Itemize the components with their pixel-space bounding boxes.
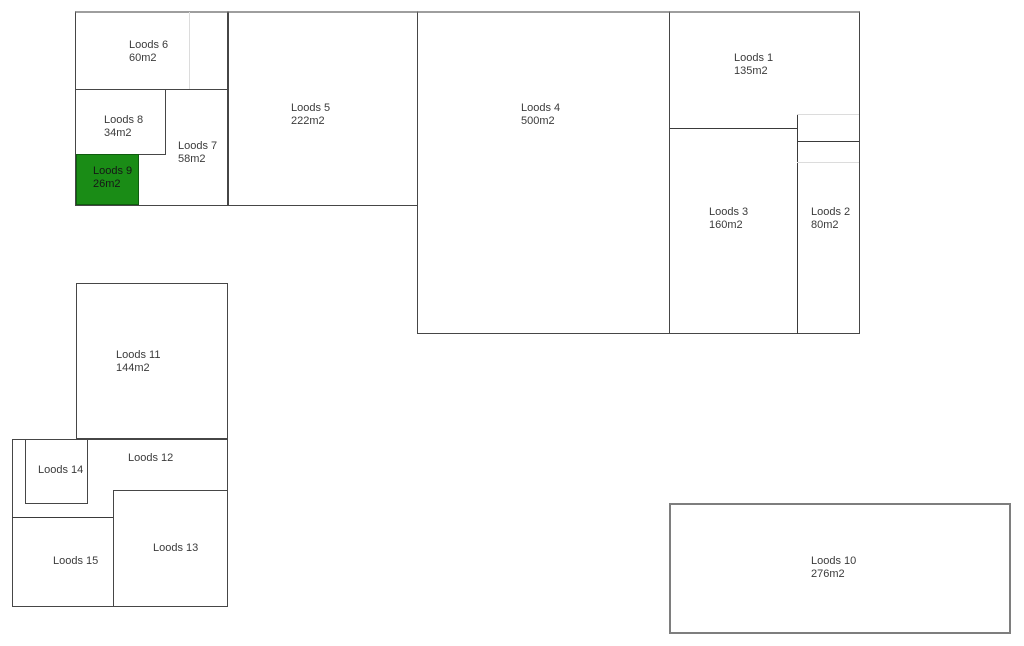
room-label-loods-15: Loods 15 [53, 555, 98, 568]
room-loods-3[interactable] [670, 129, 797, 334]
room-area: 80m2 [811, 219, 850, 232]
wall-line-light [189, 12, 190, 89]
room-loods-4[interactable] [417, 11, 670, 334]
room-name: Loods 6 [129, 39, 168, 52]
room-name: Loods 1 [734, 52, 773, 65]
room-name: Loods 15 [53, 555, 98, 568]
room-label-loods-13: Loods 13 [153, 542, 198, 555]
room-label-loods-4: Loods 4 500m2 [521, 102, 560, 127]
room-area: 135m2 [734, 65, 773, 78]
room-area: 58m2 [178, 153, 217, 166]
room-loods-2[interactable] [798, 142, 859, 334]
room-name: Loods 4 [521, 102, 560, 115]
room-name: Loods 12 [128, 452, 173, 465]
room-label-loods-10: Loods 10 276m2 [811, 555, 856, 580]
room-name: Loods 14 [38, 464, 83, 477]
room-label-loods-12: Loods 12 [128, 452, 173, 465]
room-loods-12[interactable] [89, 440, 228, 490]
room-area: 144m2 [116, 362, 160, 375]
room-area: 276m2 [811, 568, 856, 581]
room-label-loods-14: Loods 14 [38, 464, 83, 477]
room-label-loods-5: Loods 5 222m2 [291, 102, 330, 127]
room-label-loods-11: Loods 11 144m2 [116, 349, 160, 374]
room-label-loods-7: Loods 7 58m2 [178, 140, 217, 165]
room-area: 500m2 [521, 115, 560, 128]
room-name: Loods 8 [104, 114, 143, 127]
room-label-loods-9: Loods 9 26m2 [93, 165, 132, 190]
room-area: 160m2 [709, 219, 748, 232]
room-name: Loods 11 [116, 349, 160, 362]
floorplan-canvas: Loods 6 60m2 Loods 8 34m2 Loods 7 58m2 L… [0, 0, 1024, 646]
room-name: Loods 7 [178, 140, 217, 153]
room-label-loods-3: Loods 3 160m2 [709, 206, 748, 231]
room-label-loods-6: Loods 6 60m2 [129, 39, 168, 64]
room-area: 60m2 [129, 52, 168, 65]
room-area: 222m2 [291, 115, 330, 128]
room-label-loods-8: Loods 8 34m2 [104, 114, 143, 139]
room-label-loods-1: Loods 1 135m2 [734, 52, 773, 77]
room-name: Loods 5 [291, 102, 330, 115]
room-name: Loods 2 [811, 206, 850, 219]
room-label-loods-2: Loods 2 80m2 [811, 206, 850, 231]
room-name: Loods 10 [811, 555, 856, 568]
room-area: 26m2 [93, 178, 132, 191]
room-name: Loods 13 [153, 542, 198, 555]
room-area: 34m2 [104, 127, 143, 140]
room-name: Loods 3 [709, 206, 748, 219]
room-name: Loods 9 [93, 165, 132, 178]
